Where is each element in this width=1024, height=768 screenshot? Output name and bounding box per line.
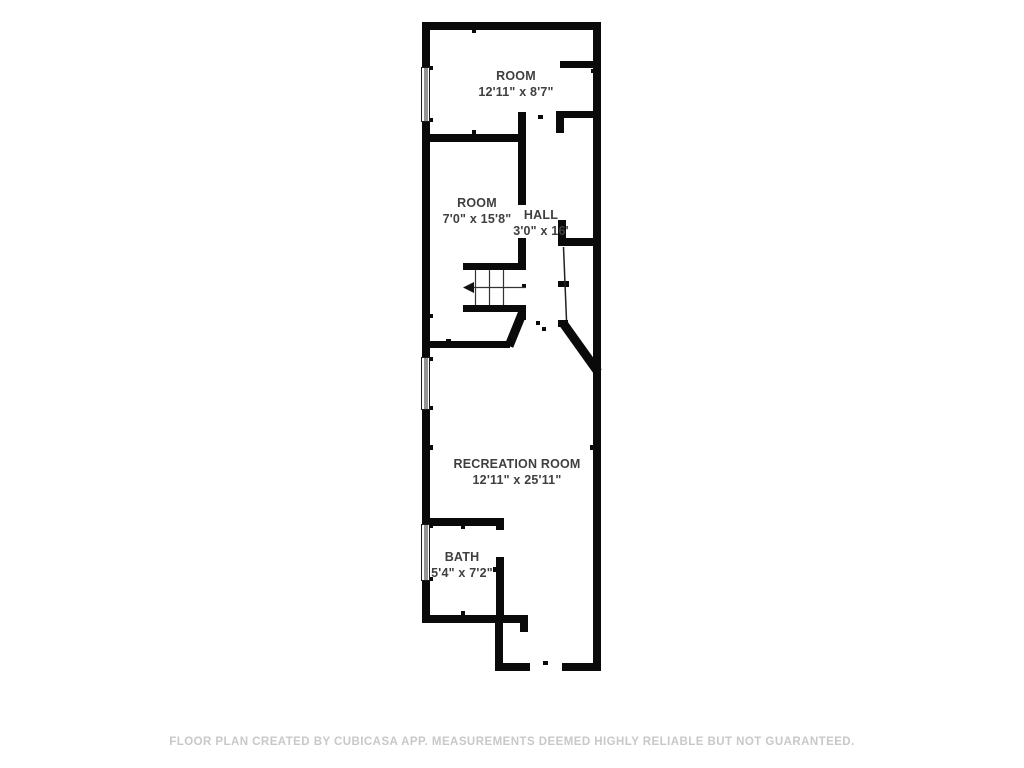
room-name: ROOM — [478, 68, 553, 84]
room-label-recreation-room: RECREATION ROOM 12'11" x 25'11" — [453, 456, 580, 488]
room-name: RECREATION ROOM — [453, 456, 580, 472]
room-label-top-room: ROOM 12'11" x 8'7" — [478, 68, 553, 100]
door-leaf — [564, 247, 567, 320]
room-dimensions: 5'4" x 7'2" — [431, 565, 493, 581]
room-label-bath: BATH 5'4" x 7'2" — [431, 549, 493, 581]
diagonal-wall — [563, 323, 598, 372]
diagonal-wall — [509, 314, 522, 346]
room-label-middle-room: ROOM 7'0" x 15'8" — [443, 195, 512, 227]
room-label-hall: HALL 3'0" x 16' — [513, 207, 569, 239]
disclaimer-text: FLOOR PLAN CREATED BY CUBICASA APP. MEAS… — [169, 736, 854, 748]
room-dimensions: 12'11" x 8'7" — [478, 84, 553, 100]
floor-plan-page: ROOM 12'11" x 8'7" ROOM 7'0" x 15'8" HAL… — [0, 0, 1024, 768]
room-name: HALL — [513, 207, 569, 223]
staircase — [467, 270, 526, 305]
room-name: ROOM — [443, 195, 512, 211]
plan-linework — [0, 0, 1024, 768]
room-dimensions: 7'0" x 15'8" — [443, 211, 512, 227]
room-name: BATH — [431, 549, 493, 565]
room-dimensions: 3'0" x 16' — [513, 223, 569, 239]
room-dimensions: 12'11" x 25'11" — [453, 472, 580, 488]
stair-arrow-icon — [463, 282, 474, 293]
